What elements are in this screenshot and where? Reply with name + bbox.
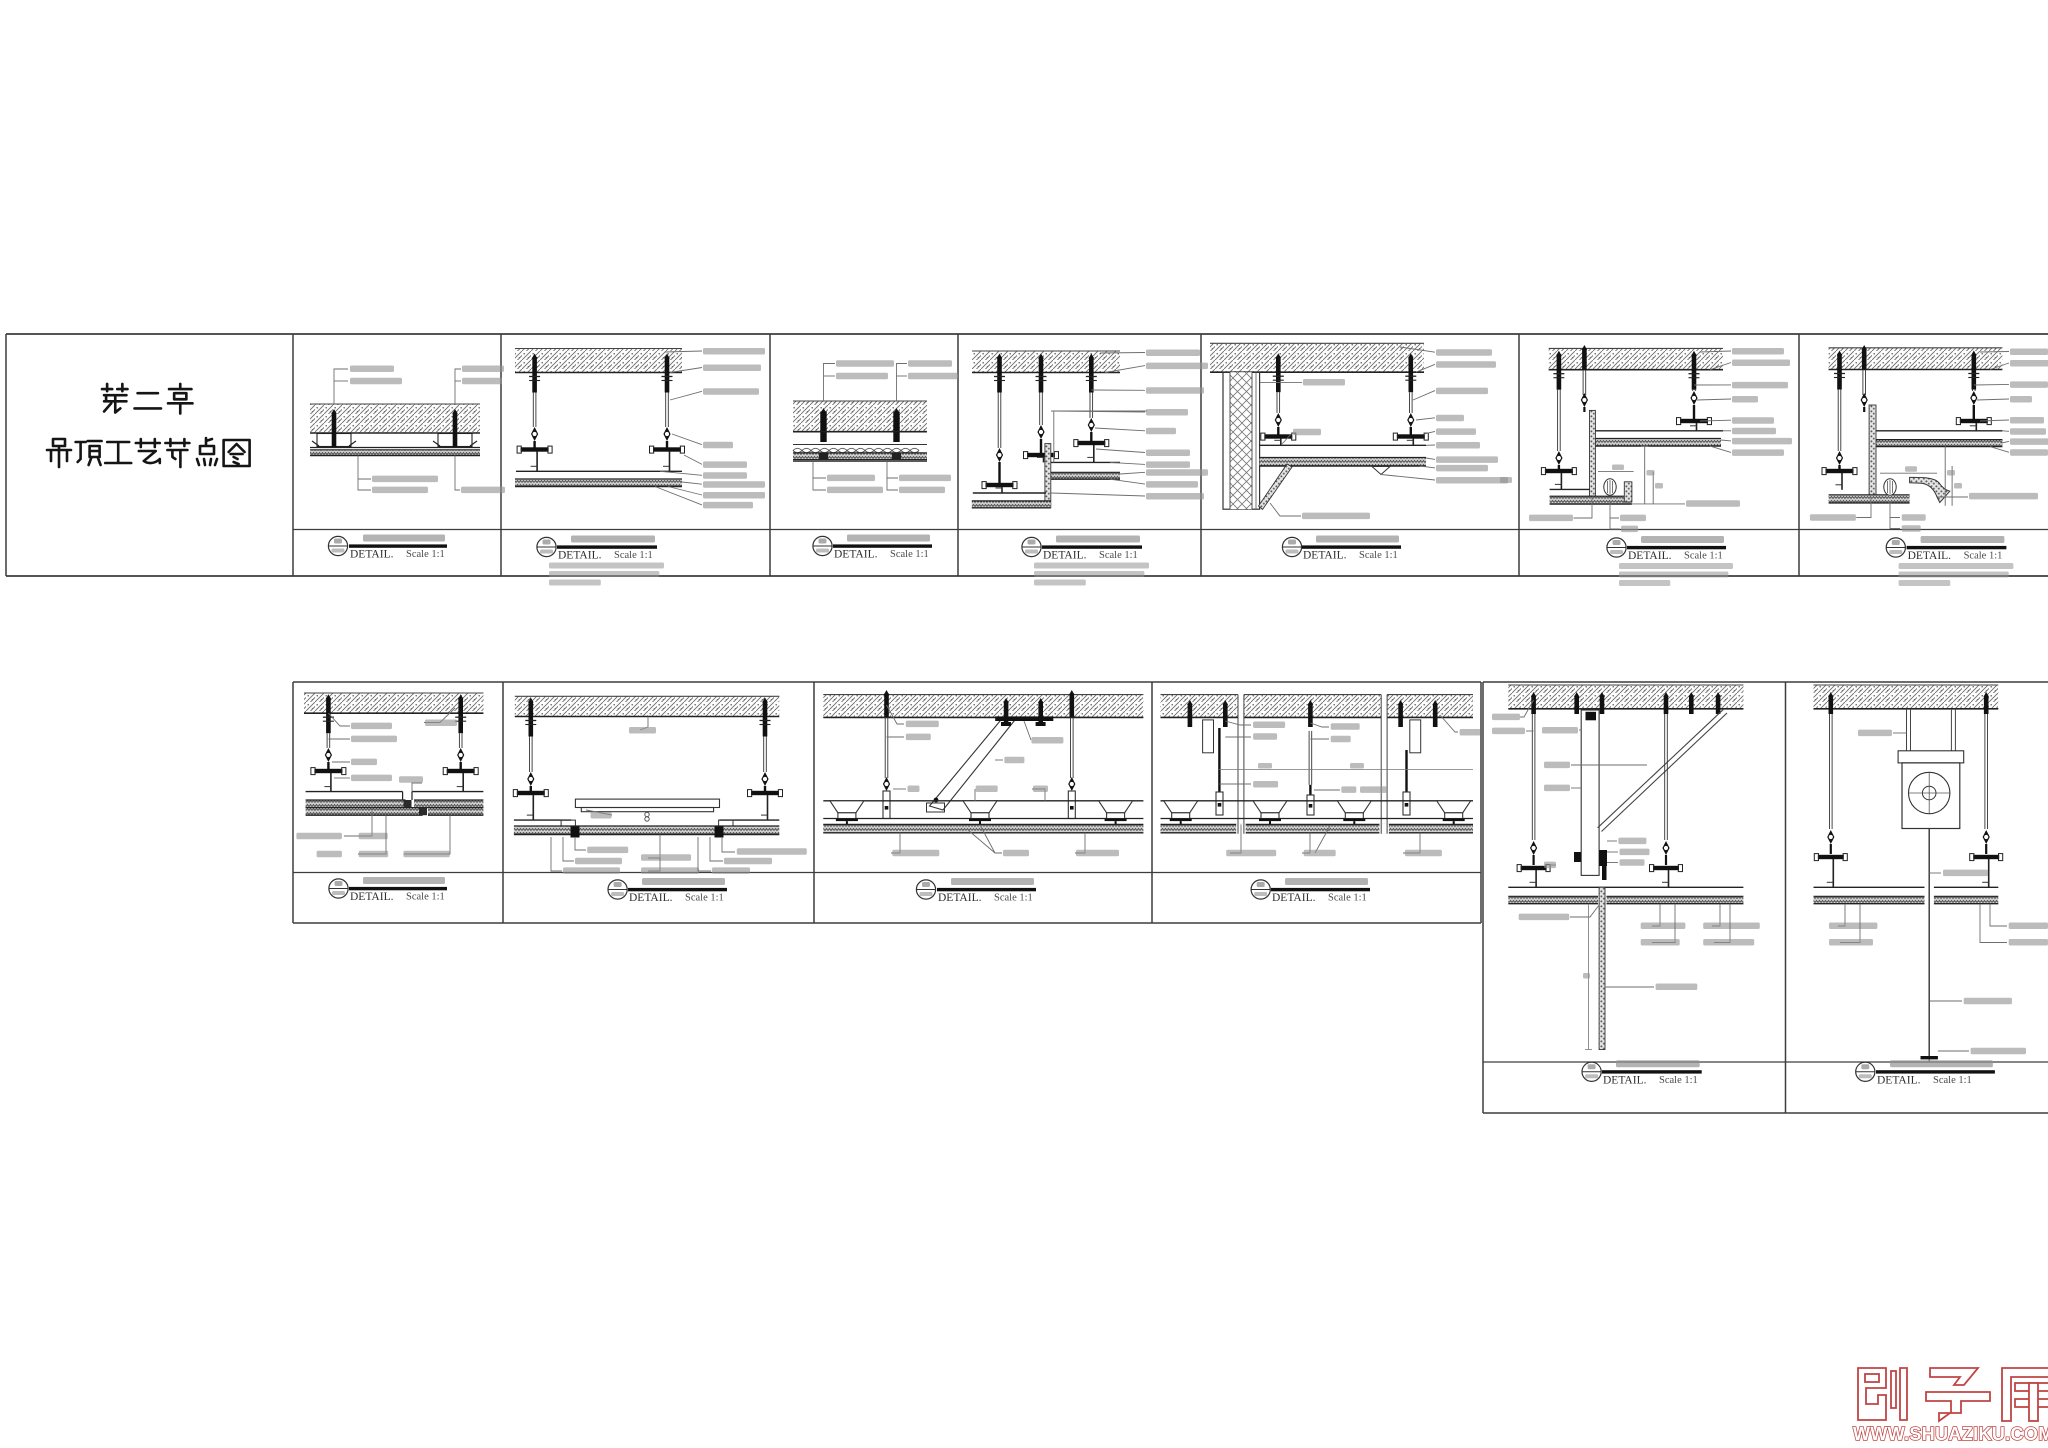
svg-text:Scale 1:1: Scale 1:1 [890,549,929,560]
svg-text:DETAIL.: DETAIL. [1303,550,1347,562]
svg-text:Scale 1:1: Scale 1:1 [1659,1075,1698,1086]
svg-text:DETAIL.: DETAIL. [938,892,982,904]
svg-text:DETAIL.: DETAIL. [350,891,394,903]
svg-text:DETAIL.: DETAIL. [834,549,878,561]
svg-text:DETAIL.: DETAIL. [1908,550,1952,562]
svg-text:DETAIL.: DETAIL. [1877,1074,1921,1086]
svg-text:Scale 1:1: Scale 1:1 [406,549,445,560]
svg-text:DETAIL.: DETAIL. [1043,550,1087,562]
svg-text:DETAIL.: DETAIL. [629,892,673,904]
svg-text:Scale 1:1: Scale 1:1 [614,550,653,561]
svg-text:Scale 1:1: Scale 1:1 [1328,893,1367,904]
svg-text:Scale 1:1: Scale 1:1 [1933,1075,1972,1086]
svg-text:WWW.SHUAZIKU.COM: WWW.SHUAZIKU.COM [1853,1424,2048,1444]
svg-text:DETAIL.: DETAIL. [1628,550,1672,562]
svg-text:Scale 1:1: Scale 1:1 [1964,551,2003,562]
svg-text:Scale 1:1: Scale 1:1 [1359,550,1398,561]
svg-text:DETAIL.: DETAIL. [1603,1074,1647,1086]
svg-text:Scale 1:1: Scale 1:1 [994,893,1033,904]
svg-text:Scale 1:1: Scale 1:1 [1684,551,1723,562]
svg-text:DETAIL.: DETAIL. [1272,892,1316,904]
svg-text:Scale 1:1: Scale 1:1 [1099,550,1138,561]
svg-text:DETAIL.: DETAIL. [350,549,394,561]
svg-text:Scale 1:1: Scale 1:1 [685,893,724,904]
svg-text:DETAIL.: DETAIL. [558,550,602,562]
svg-text:Scale 1:1: Scale 1:1 [406,892,445,903]
